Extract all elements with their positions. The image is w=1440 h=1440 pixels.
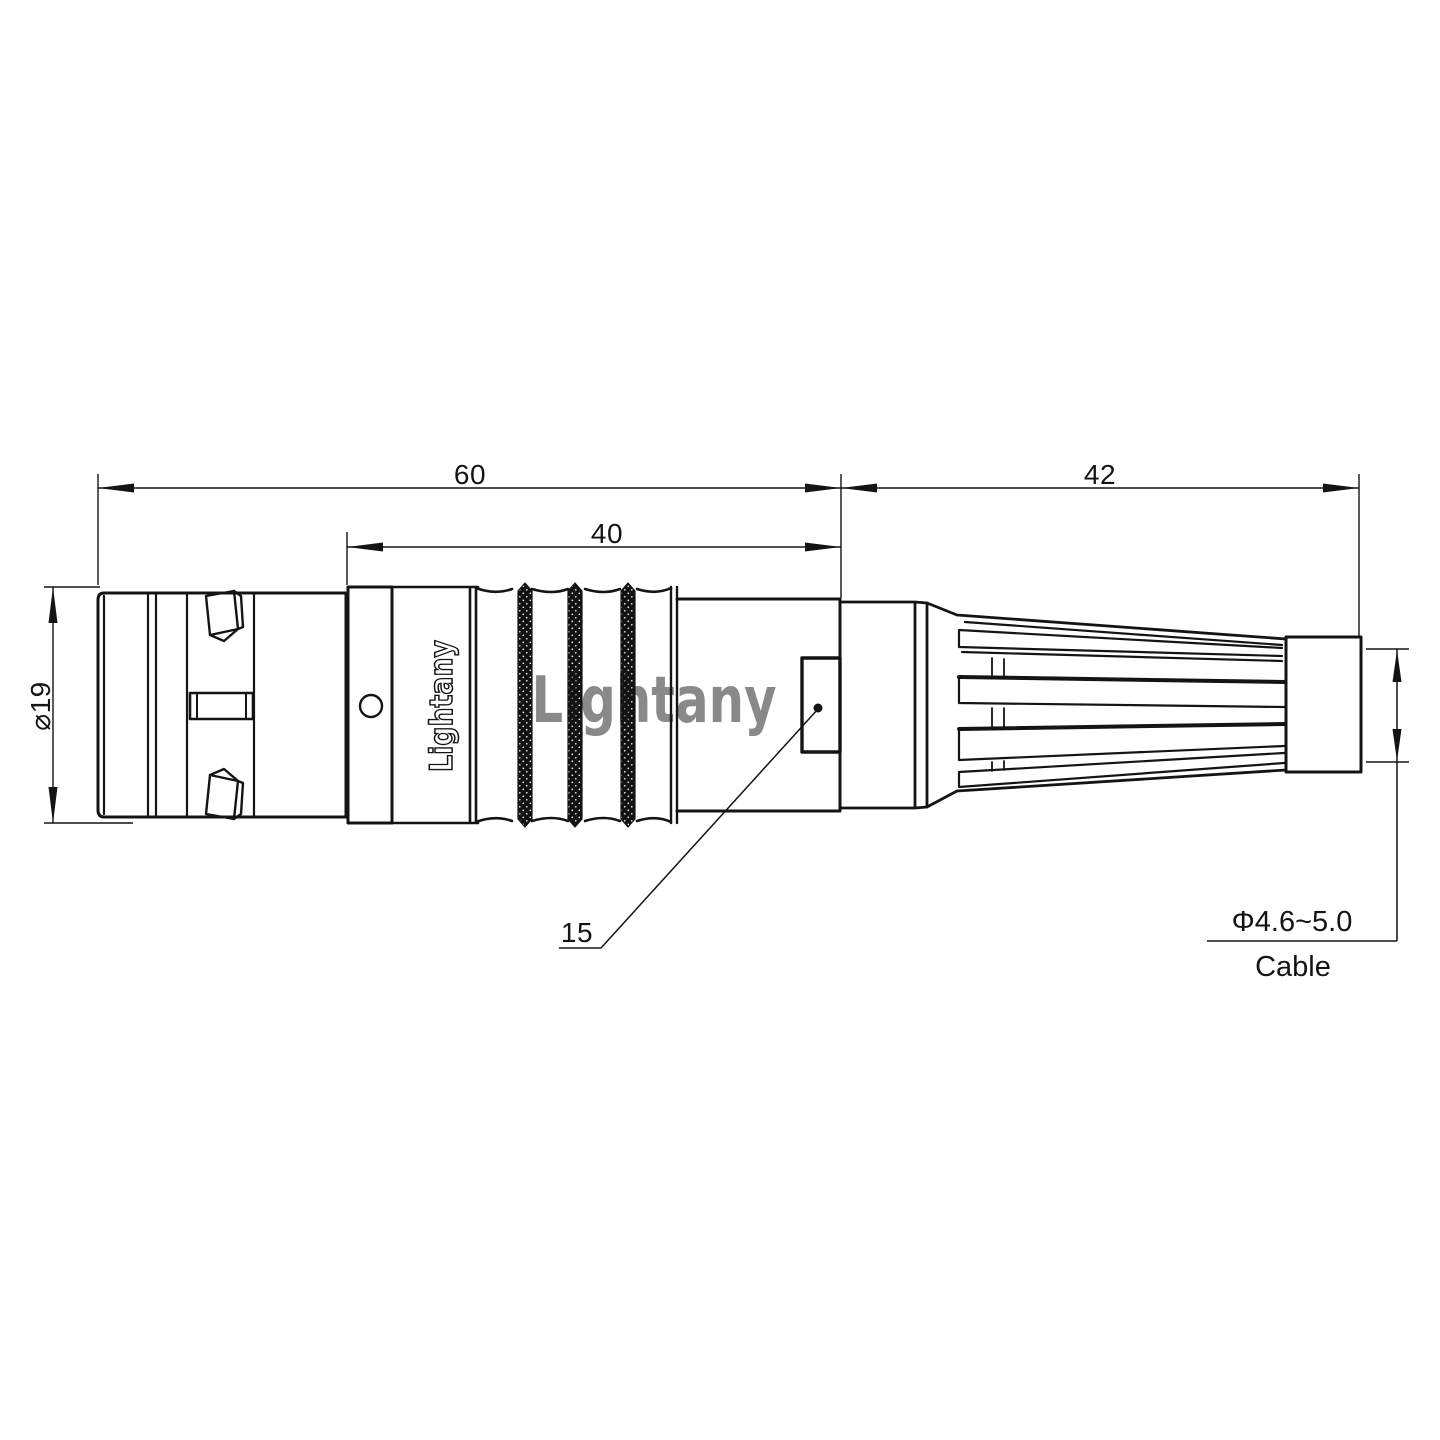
dim-cable-arrow-bottom [1393, 729, 1402, 761]
dim-front-length: 40 [347, 518, 841, 585]
technical-drawing: Lightany Lightany 60 40 42 [0, 0, 1440, 1440]
dim-19-arrow-top [49, 587, 58, 623]
dim-cable-arrow-top [1393, 650, 1402, 682]
dim-total-length: 60 [98, 459, 841, 598]
vent-hole [360, 695, 382, 717]
boot-collar-lines [841, 602, 927, 808]
dim-19-value: ⌀19 [25, 681, 56, 731]
dim-42-arrow-left [841, 484, 877, 493]
dim-40-arrow-right [805, 543, 841, 552]
dim-60-lines [98, 474, 841, 598]
dim-60-arrow-right [805, 484, 841, 493]
watermark-text: Lightany [532, 664, 777, 738]
boot-slot-bars [992, 658, 1004, 771]
key-slot [190, 693, 253, 719]
dim-40-arrow-left [347, 543, 383, 552]
label-15-leader-dot [814, 704, 823, 713]
dim-19-arrow-bottom [49, 787, 58, 823]
dim-60-arrow-left [98, 484, 134, 493]
knurl-band-1 [518, 583, 532, 827]
dim-42-value: 42 [1084, 459, 1116, 490]
cable-diameter-value: Φ4.6~5.0 [1232, 906, 1353, 938]
cable-exit-ferrule [1286, 637, 1361, 772]
dim-rear-length: 42 [841, 459, 1359, 636]
label-15-value: 15 [561, 917, 593, 948]
boot-fin-lines [959, 622, 1284, 787]
label-nut-size: 15 [559, 704, 823, 949]
cable-label: Cable [1255, 951, 1331, 983]
dim-40-value: 40 [591, 518, 623, 549]
brand-label-vertical: Lightany [424, 640, 460, 772]
dim-42-lines [841, 474, 1359, 636]
label-15-leader [559, 709, 818, 948]
dim-42-arrow-right [1323, 484, 1359, 493]
dim-60-value: 60 [454, 459, 486, 490]
